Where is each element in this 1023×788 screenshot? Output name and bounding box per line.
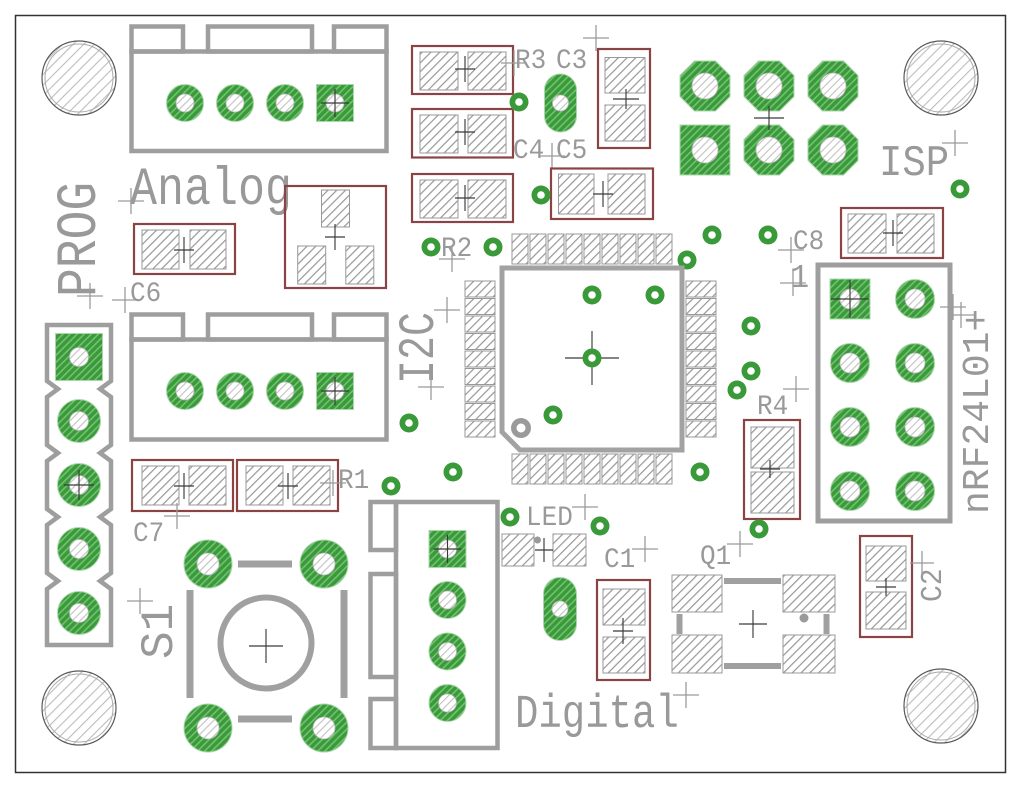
svg-text:I2C: I2C: [391, 312, 449, 384]
svg-text:C5: C5: [556, 135, 587, 167]
svg-text:R1: R1: [338, 465, 369, 497]
svg-text:ISP: ISP: [879, 140, 949, 189]
svg-text:C2: C2: [916, 568, 950, 602]
svg-text:S1: S1: [134, 604, 186, 659]
svg-text:LED: LED: [526, 502, 573, 534]
svg-text:Analog: Analog: [130, 159, 292, 220]
svg-text:R2: R2: [441, 233, 472, 265]
svg-text:Q1: Q1: [700, 541, 731, 573]
svg-text:C1: C1: [604, 544, 635, 576]
svg-text:PROG: PROG: [48, 182, 113, 297]
svg-text:C4: C4: [513, 135, 544, 167]
svg-text:C8: C8: [793, 226, 824, 258]
svg-text:R3: R3: [515, 45, 546, 77]
svg-text:Digital: Digital: [515, 689, 679, 743]
svg-text:nRF24L01+: nRF24L01+: [957, 309, 1000, 514]
svg-text:C6: C6: [130, 278, 161, 310]
svg-text:R4: R4: [757, 391, 788, 423]
svg-text:C7: C7: [133, 518, 164, 550]
svg-text:C3: C3: [556, 45, 587, 77]
